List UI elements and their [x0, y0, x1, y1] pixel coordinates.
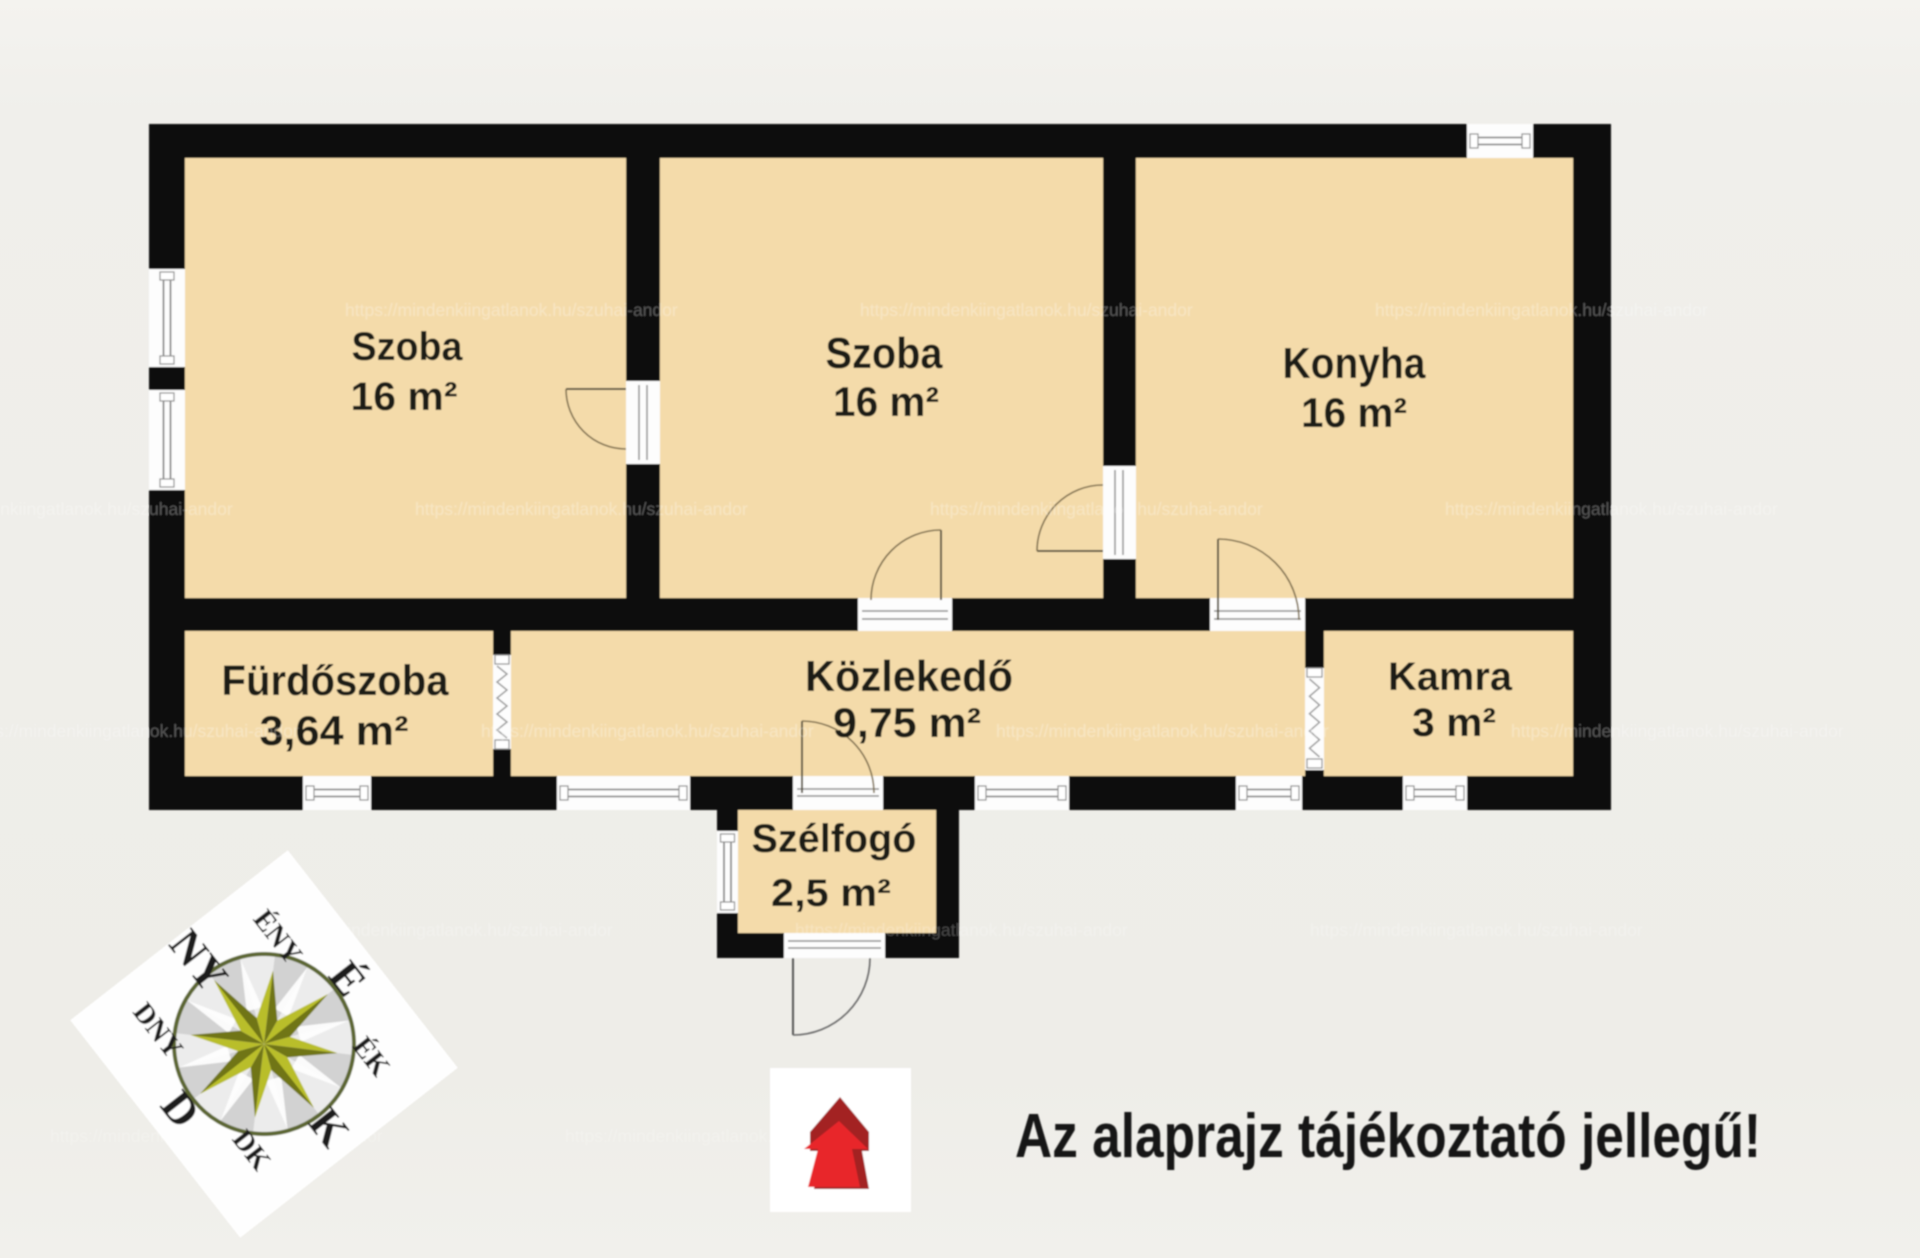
svg-text:Kamra: Kamra [1388, 655, 1513, 699]
svg-text:9,75 m²: 9,75 m² [833, 699, 981, 746]
svg-text:https://mindenkiingatlanok.hu/: https://mindenkiingatlanok.hu/szuhai-and… [345, 300, 678, 320]
svg-text:Szélfogó: Szélfogó [752, 817, 917, 861]
svg-text:16 m²: 16 m² [833, 378, 939, 425]
svg-text:https://mindenkiingatlanok.hu/: https://mindenkiingatlanok.hu/szuhai-and… [481, 721, 814, 741]
svg-text:3 m²: 3 m² [1412, 701, 1496, 745]
svg-text:Konyha: Konyha [1283, 339, 1426, 388]
svg-text:https://mindenkiingatlanok.hu/: https://mindenkiingatlanok.hu/szuhai-and… [795, 920, 1128, 940]
svg-text:https://mindenkiingatlanok.hu/: https://mindenkiingatlanok.hu/szuhai-and… [0, 721, 299, 741]
svg-text:Az alaprajz tájékoztató jelleg: Az alaprajz tájékoztató jellegű! [1015, 1102, 1761, 1171]
svg-text:Szoba: Szoba [826, 329, 943, 378]
svg-text:https://mindenkiingatlanok.hu/: https://mindenkiingatlanok.hu/szuhai-and… [1310, 920, 1643, 940]
svg-text:Fürdőszoba: Fürdőszoba [222, 657, 450, 705]
svg-text:https://mindenkiingatlanok.hu/: https://mindenkiingatlanok.hu/szuhai-and… [1445, 499, 1778, 519]
svg-text:https://mindenkiingatlanok.hu/: https://mindenkiingatlanok.hu/szuhai-and… [0, 499, 233, 519]
svg-text:Közlekedő: Közlekedő [805, 652, 1013, 701]
svg-text:https://mindenkiingatlanok.hu/: https://mindenkiingatlanok.hu/szuhai-and… [860, 300, 1193, 320]
svg-text:16 m²: 16 m² [351, 375, 458, 419]
svg-text:2,5 m²: 2,5 m² [771, 872, 891, 915]
svg-text:16 m²: 16 m² [1301, 389, 1407, 436]
svg-text:https://mindenkiingatlanok.hu/: https://mindenkiingatlanok.hu/szuhai-and… [1375, 300, 1708, 320]
svg-text:https://mindenkiingatlanok.hu/: https://mindenkiingatlanok.hu/szuhai-and… [930, 499, 1263, 519]
svg-text:https://mindenkiingatlanok.hu/: https://mindenkiingatlanok.hu/szuhai-and… [415, 499, 748, 519]
svg-text:https://mindenkiingatlanok.hu/: https://mindenkiingatlanok.hu/szuhai-and… [1511, 721, 1844, 741]
svg-text:Szoba: Szoba [352, 325, 464, 369]
svg-text:https://mindenkiingatlanok.hu/: https://mindenkiingatlanok.hu/szuhai-and… [996, 721, 1329, 741]
